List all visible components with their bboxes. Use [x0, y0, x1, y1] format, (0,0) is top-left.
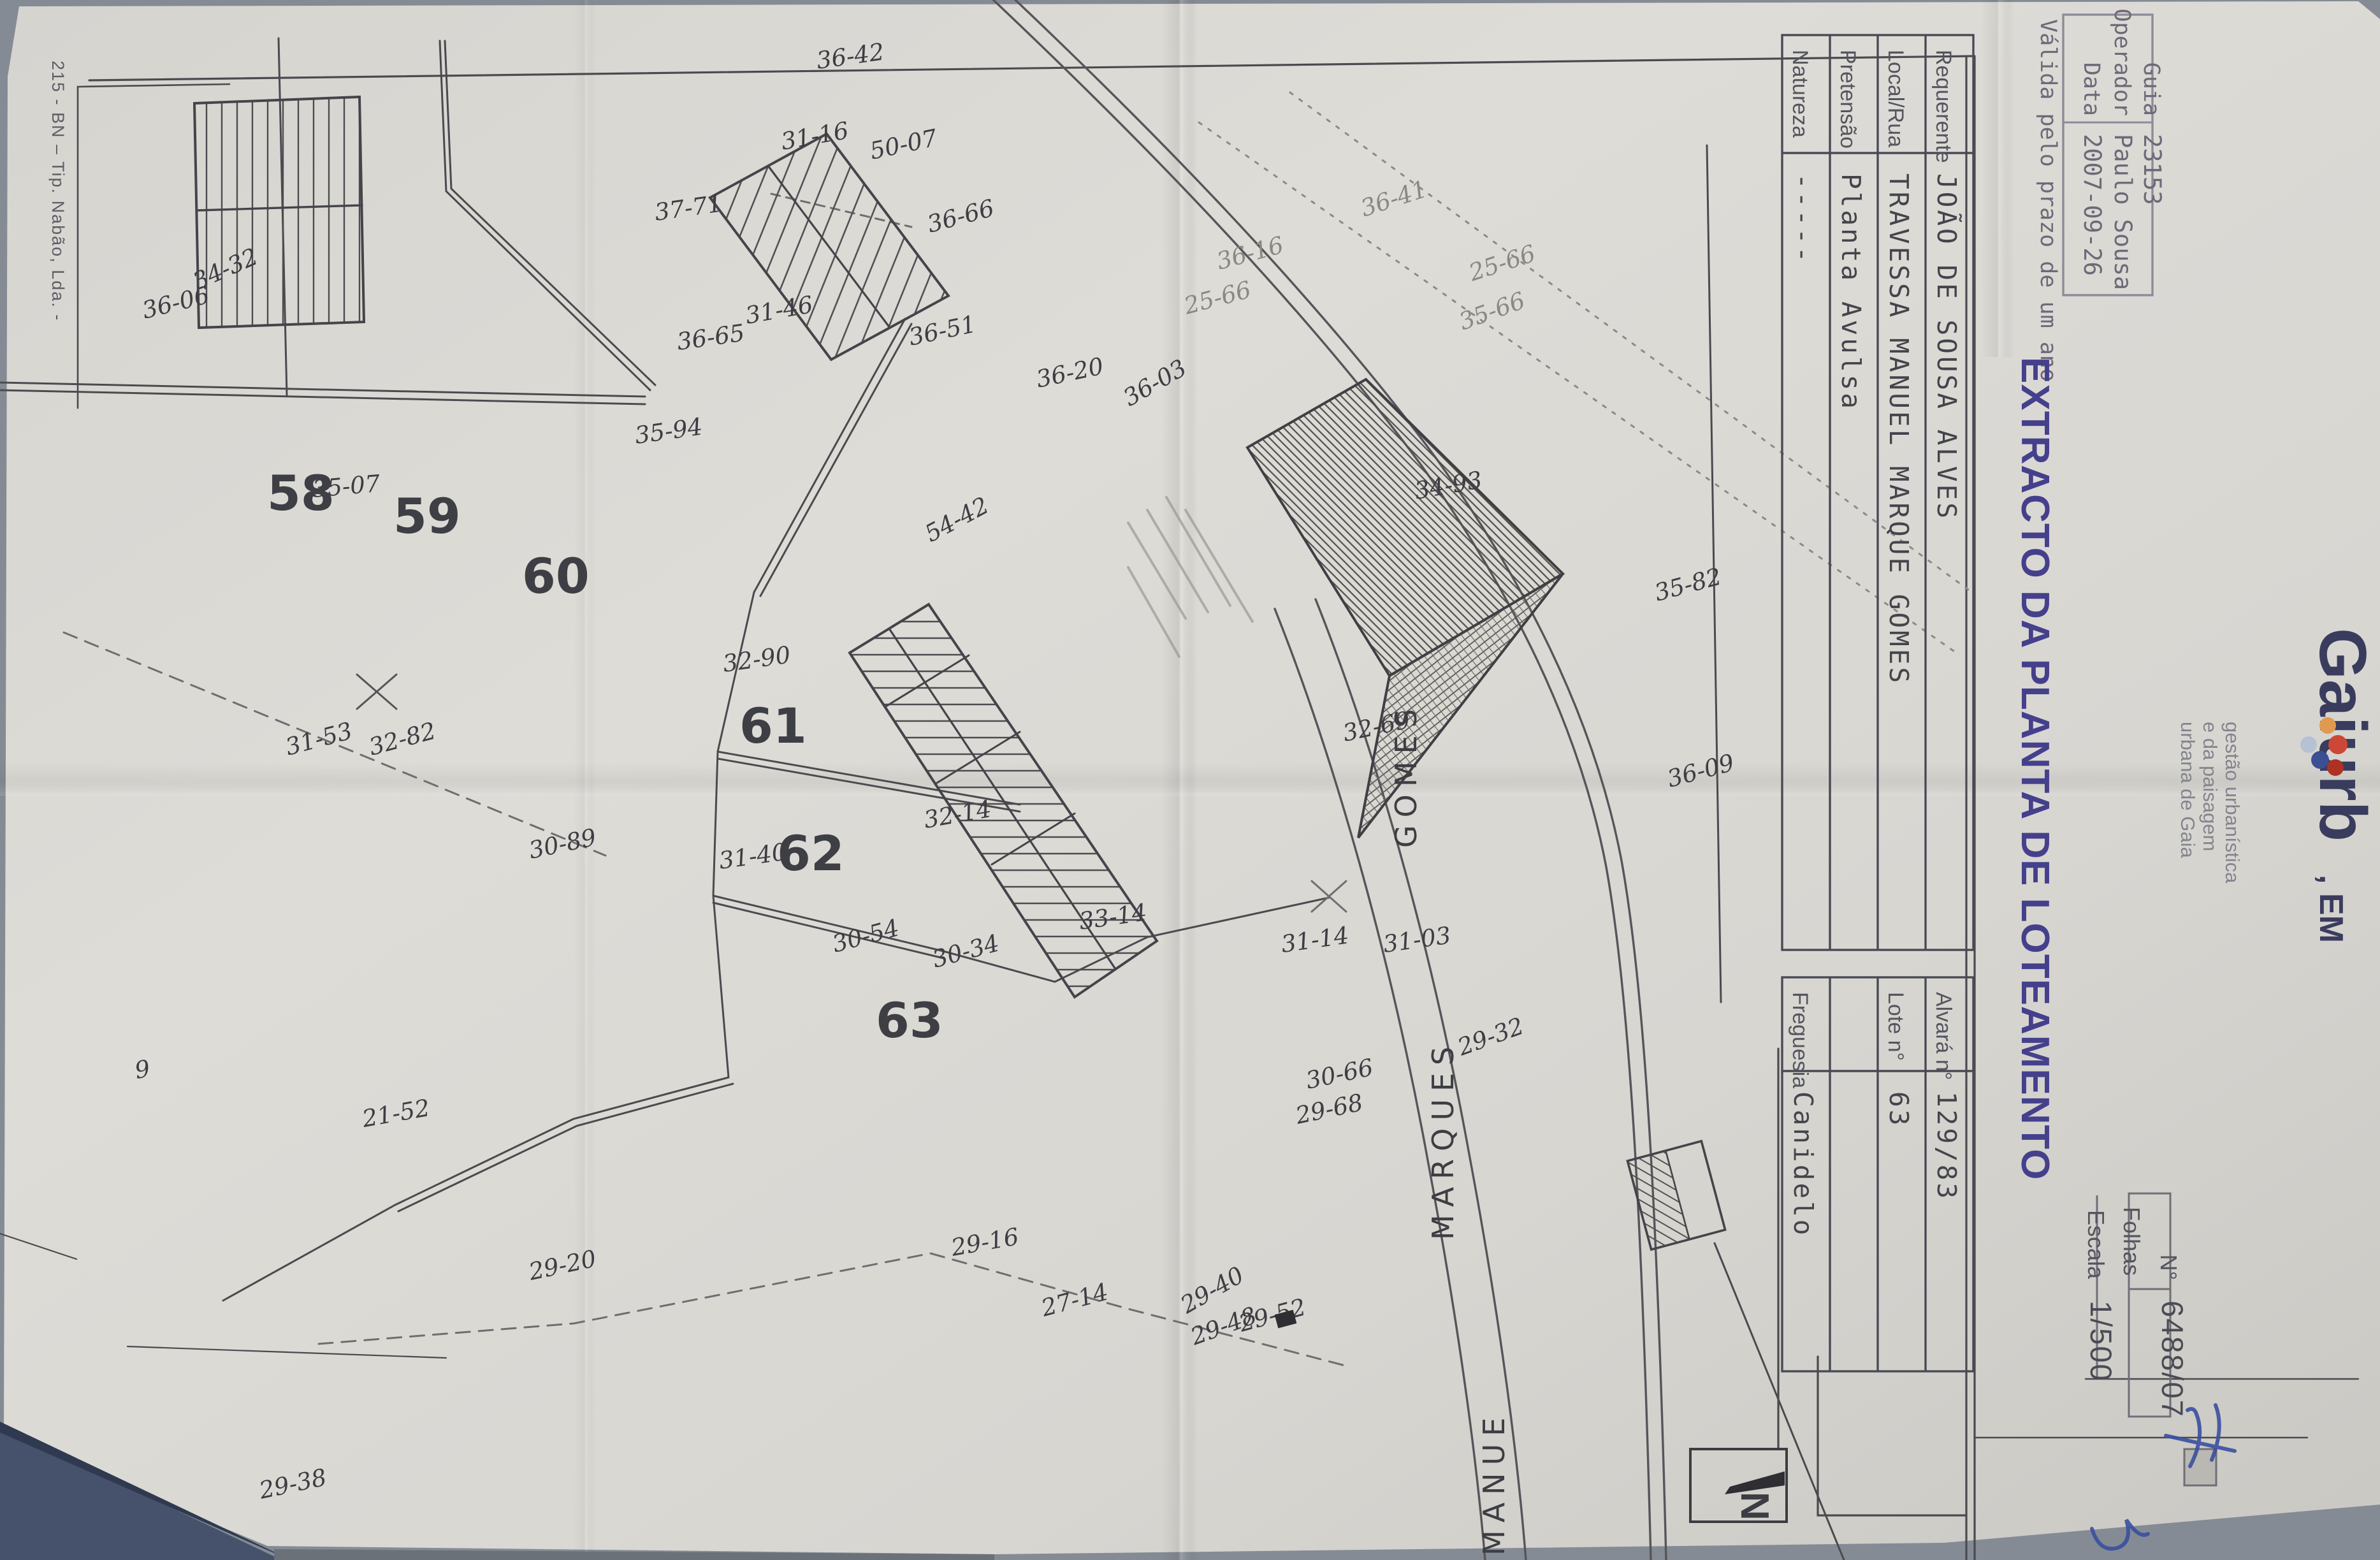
stamp-label-data: Data — [2079, 62, 2104, 116]
building-lots-58-59 — [194, 97, 364, 328]
logo-tagline-2: e da paisagem — [2199, 722, 2221, 851]
field-label-lote: Lote n° — [1883, 992, 1908, 1061]
ref-label-folhas: Folhas — [2119, 1207, 2145, 1276]
north-label: N — [1732, 1492, 1776, 1520]
map-street-label: MARQUES — [1426, 1039, 1460, 1240]
ref-label-escala: Escala — [2083, 1210, 2109, 1279]
stamp-label-operador: Operador — [2109, 8, 2135, 116]
field-label-natureza: Natureza — [1788, 50, 1812, 138]
document-title: EXTRACTO DA PLANTA DE LOTEAMENTO — [2013, 357, 2057, 1181]
field-value-natureza: ----- — [1788, 173, 1818, 265]
logo-tagline-1: gestão urbanística — [2221, 722, 2244, 884]
field-label-pretensao: Pretensão — [1836, 50, 1860, 149]
field-label-local-rua: Local/Rua — [1883, 50, 1908, 147]
field-label-alvara: Alvará n° — [1931, 992, 1956, 1080]
field-value-local-rua: TRAVESSA MANUEL MARQUE GOMES — [1883, 173, 1914, 685]
map-lot-number: 62 — [777, 825, 845, 882]
field-label-requerente: Requerente — [1931, 50, 1956, 163]
field-value-alvara: 129/83 — [1931, 1091, 1962, 1201]
scanned-document-page: N 36-4231-1650-0737-7136-6636-6531-4636-… — [0, 0, 2380, 1560]
field-value-lote: 63 — [1883, 1091, 1914, 1128]
stamp-value-operador: Paulo Sousa — [2109, 134, 2137, 290]
stamp-value-guia: 23153 — [2138, 134, 2166, 205]
ref-label-numero: N° — [2156, 1255, 2182, 1280]
ref-value-numero: 6488/07 — [2156, 1301, 2189, 1418]
map-lot-number: 63 — [876, 992, 943, 1049]
corner-crease — [1981, 0, 2014, 357]
map-lot-number: 58 — [267, 465, 335, 521]
field-value-pretensao: Planta Avulsa — [1836, 173, 1866, 411]
stamp-label-guia: Guia — [2138, 62, 2164, 116]
map-lot-number: 60 — [522, 548, 590, 604]
field-value-requerente: JOÃO DE SOUSA ALVES — [1931, 173, 1962, 521]
logo-suffix: , EM — [2312, 875, 2349, 943]
stamp-validity-note: Válida pelo prazo de um ano — [2035, 19, 2061, 382]
field-value-freguesia: Canidelo — [1788, 1091, 1818, 1237]
map-lot-number: 59 — [393, 488, 461, 544]
map-street-label: MANUE — [1477, 1410, 1511, 1556]
field-label-freguesia: Freguesia — [1788, 992, 1812, 1088]
map-lot-number: 61 — [739, 697, 807, 754]
ref-value-escala: 1/500 — [2084, 1301, 2118, 1382]
logo-tagline-3: urbana de Gaia — [2177, 722, 2199, 858]
stamp-value-data: 2007-09-26 — [2079, 134, 2106, 276]
scan-canvas: N 36-4231-1650-0737-7136-6636-6531-4636-… — [0, 0, 2380, 1560]
logo-wordmark: Gaiurb — [2305, 628, 2379, 842]
printer-mark: 215 - BN – Tip. Nabão, Lda. - — [48, 61, 68, 321]
map-street-label: GOMES — [1389, 701, 1423, 848]
